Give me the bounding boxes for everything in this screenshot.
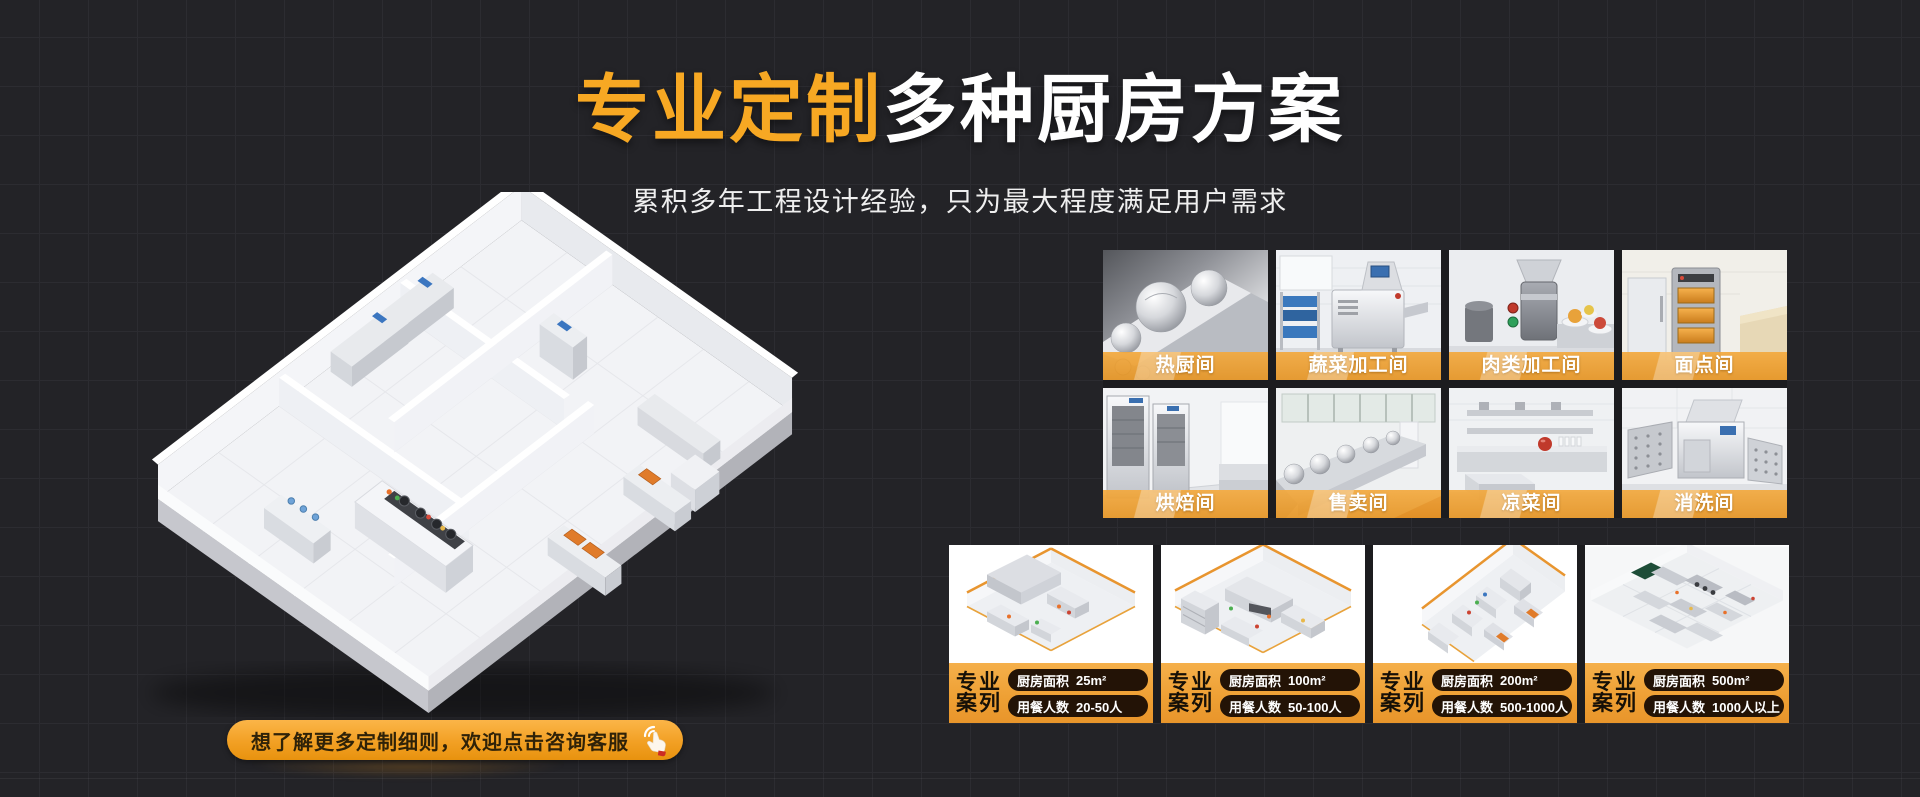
room-label: 烘焙间	[1103, 490, 1268, 518]
case-card-500m2[interactable]: 专业 案列 厨房面积 500m² 用餐人数 1000人以上	[1585, 545, 1789, 723]
title-rest: 多种厨房方案	[883, 68, 1345, 151]
case-render-25m2	[949, 545, 1153, 664]
case-specs: 厨房面积 200m² 用餐人数 500-1000人	[1432, 669, 1572, 717]
case-badge-line2: 案列	[1380, 693, 1426, 714]
case-badge-line1: 专业	[956, 672, 1002, 693]
bottom-divider-line	[0, 778, 1920, 779]
consult-cta-button[interactable]: 想了解更多定制细则，欢迎点击咨询客服	[227, 720, 683, 760]
case-card-25m2[interactable]: 专业 案列 厨房面积 25m² 用餐人数 20-50人	[949, 545, 1153, 723]
kitchen-area-spec: 厨房面积 200m²	[1432, 669, 1572, 691]
case-render-100m2	[1161, 545, 1365, 664]
diners-spec: 用餐人数 50-100人	[1220, 695, 1360, 717]
case-badge-line1: 专业	[1592, 672, 1638, 693]
click-hand-icon	[637, 723, 671, 757]
case-card-100m2[interactable]: 专业 案列 厨房面积 100m² 用餐人数 50-100人	[1161, 545, 1365, 723]
case-info-bar: 专业 案列 厨房面积 25m² 用餐人数 20-50人	[949, 663, 1153, 723]
room-tile-pastry[interactable]: 面点间	[1622, 250, 1787, 380]
room-tile-hot-kitchen[interactable]: 热厨间	[1103, 250, 1268, 380]
case-info-bar: 专业 案列 厨房面积 100m² 用餐人数 50-100人	[1161, 663, 1365, 723]
diners-spec: 用餐人数 500-1000人	[1432, 695, 1572, 717]
page-title: 专业定制多种厨房方案	[0, 50, 1920, 157]
case-specs: 厨房面积 25m² 用餐人数 20-50人	[1008, 669, 1148, 717]
case-badge-line2: 案列	[1592, 693, 1638, 714]
room-tile-baking[interactable]: 烘焙间	[1103, 388, 1268, 518]
room-label: 售卖间	[1276, 490, 1441, 518]
case-specs: 厨房面积 500m² 用餐人数 1000人以上	[1644, 669, 1784, 717]
case-badge: 专业 案列	[1592, 672, 1638, 715]
case-info-bar: 专业 案列 厨房面积 500m² 用餐人数 1000人以上	[1585, 663, 1789, 723]
case-cards-row: 专业 案列 厨房面积 25m² 用餐人数 20-50人	[949, 545, 1789, 723]
room-tile-washing[interactable]: 消洗间	[1622, 388, 1787, 518]
room-tile-serving[interactable]: 售卖间	[1276, 388, 1441, 518]
room-label: 消洗间	[1622, 490, 1787, 518]
kitchen-area-spec: 厨房面积 100m²	[1220, 669, 1360, 691]
case-badge: 专业 案列	[1168, 672, 1214, 715]
case-render-500m2	[1585, 545, 1789, 664]
cta-reflection	[247, 763, 569, 779]
title-highlight: 专业定制	[575, 68, 883, 151]
case-badge: 专业 案列	[1380, 672, 1426, 715]
room-tile-vegetable-processing[interactable]: 蔬菜加工间	[1276, 250, 1441, 380]
case-render-200m2	[1373, 545, 1577, 664]
case-specs: 厨房面积 100m² 用餐人数 50-100人	[1220, 669, 1360, 717]
kitchen-floorplan-illustration	[128, 192, 818, 717]
room-tiles-grid: 热厨间 蔬菜加工	[1103, 250, 1787, 518]
room-label: 面点间	[1622, 352, 1787, 380]
room-label: 蔬菜加工间	[1276, 352, 1441, 380]
case-badge-line1: 专业	[1168, 672, 1214, 693]
case-info-bar: 专业 案列 厨房面积 200m² 用餐人数 500-1000人	[1373, 663, 1577, 723]
kitchen-area-spec: 厨房面积 25m²	[1008, 669, 1148, 691]
case-badge-line2: 案列	[956, 693, 1002, 714]
room-label: 凉菜间	[1449, 490, 1614, 518]
case-badge-line2: 案列	[1168, 693, 1214, 714]
case-badge-line1: 专业	[1380, 672, 1426, 693]
kitchen-solutions-banner: 专业定制多种厨房方案 累积多年工程设计经验，只为最大程度满足用户需求	[0, 0, 1920, 797]
kitchen-area-spec: 厨房面积 500m²	[1644, 669, 1784, 691]
room-label: 热厨间	[1103, 352, 1268, 380]
room-tile-meat-processing[interactable]: 肉类加工间	[1449, 250, 1614, 380]
room-label: 肉类加工间	[1449, 352, 1614, 380]
diners-spec: 用餐人数 1000人以上	[1644, 695, 1784, 717]
room-tile-cold-dish[interactable]: 凉菜间	[1449, 388, 1614, 518]
case-badge: 专业 案列	[956, 672, 1002, 715]
diners-spec: 用餐人数 20-50人	[1008, 695, 1148, 717]
consult-cta-label: 想了解更多定制细则，欢迎点击咨询客服	[251, 726, 629, 755]
case-card-200m2[interactable]: 专业 案列 厨房面积 200m² 用餐人数 500-1000人	[1373, 545, 1577, 723]
